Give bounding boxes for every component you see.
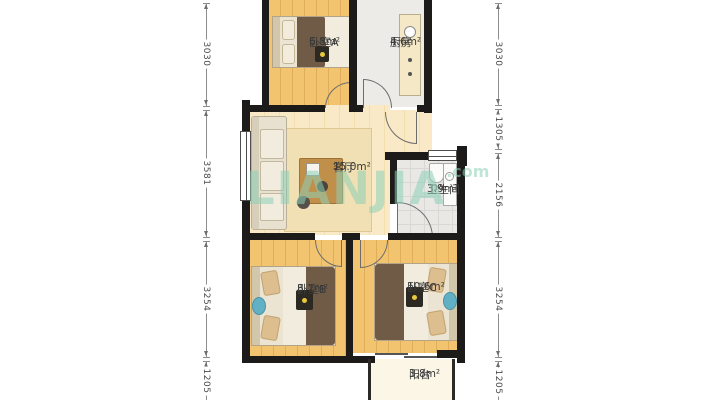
bedroomA-pillow (282, 20, 295, 40)
dim-label: 1305 (493, 115, 503, 144)
dim-label: 3254 (493, 285, 503, 314)
bedroomA-headboard (273, 17, 280, 67)
sofa-cushion (260, 129, 284, 159)
bedroomC-lamp (443, 292, 457, 310)
bedroomC-blanket (375, 264, 404, 340)
bedroomB-lamp (252, 297, 266, 315)
kitchen-right-wall (424, 0, 432, 113)
balcony-left-rail (368, 359, 371, 400)
wall-chunk (351, 105, 363, 112)
middle-wall (242, 233, 315, 240)
dim-label: 1205 (493, 368, 503, 397)
bedroomA-left-wall (262, 0, 269, 112)
dim-label: 1205 (201, 367, 211, 396)
dim-label: 3030 (493, 40, 503, 69)
bedroomA-bottom-wall (262, 105, 325, 112)
bedroomB-bottom-wall (242, 356, 375, 363)
bedroomC-bottom-wall (437, 350, 465, 358)
bedroomA-kitchen-wall (349, 0, 357, 112)
dim-label: 3030 (201, 40, 211, 69)
balcony-sliding-door (404, 356, 437, 358)
lianjia-watermark: LIANJIA.com (246, 162, 446, 215)
balcony-sliding-door (375, 353, 408, 355)
dim-label: 3254 (201, 285, 211, 314)
bedroomA-pillow (282, 44, 295, 64)
dim-label: 2156 (493, 181, 503, 210)
entry-wall-chunk (417, 105, 432, 112)
bathroom-window (428, 150, 457, 161)
bathroom-bottom-wall (388, 233, 465, 240)
floorplan-image: LIANJIA.com 卧室A 6.8m² 厨房 4.6m² 客厅 15.0m²… (0, 0, 710, 400)
bedroomB-C-divider-wall (346, 233, 353, 363)
kitchen-burner-icon (408, 72, 412, 76)
balcony-right-rail (452, 359, 455, 400)
kitchen-burner-icon (408, 58, 412, 62)
dim-label: 3581 (201, 159, 211, 188)
